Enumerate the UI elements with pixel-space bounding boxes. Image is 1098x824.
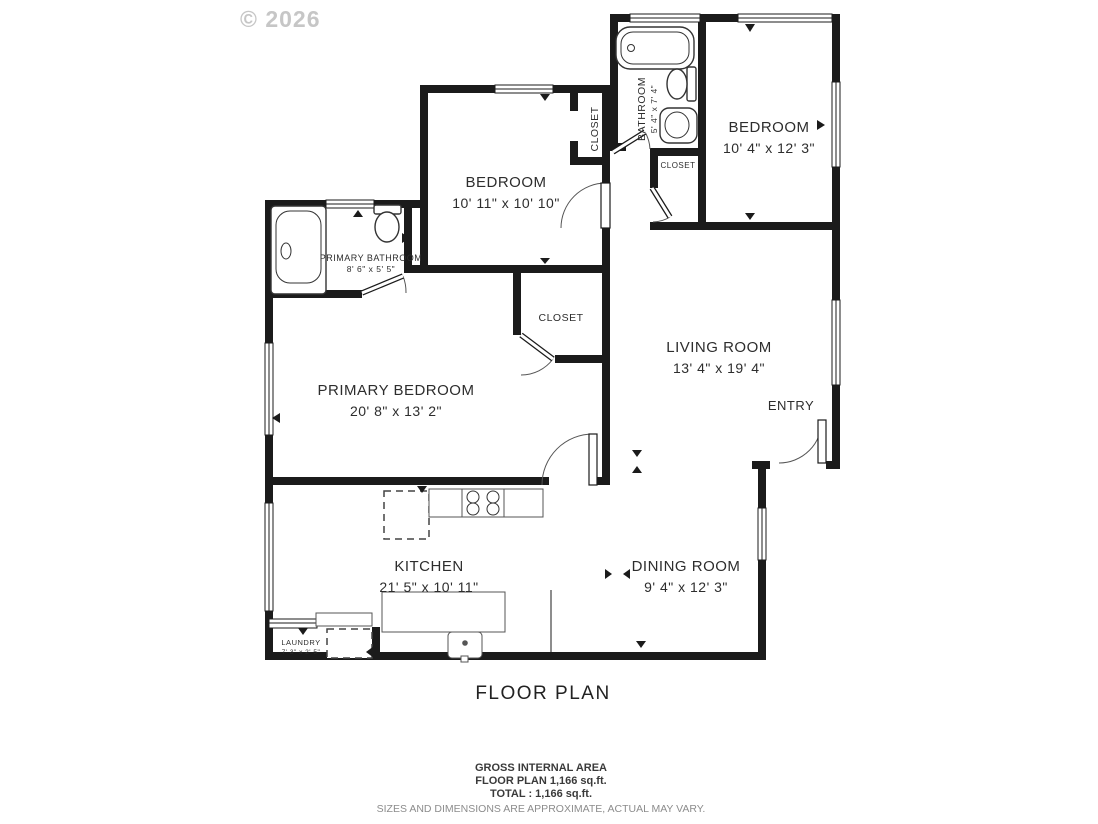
shelf — [316, 613, 372, 626]
room-label-kitchen: KITCHEN 21' 5" x 10' 11" — [379, 558, 478, 595]
window — [265, 503, 273, 611]
door-bedroom-middle — [561, 183, 610, 228]
floor-plan-page: BATHROOM 5' 4" x 7' 4" BEDROOM 10' 4" x … — [0, 0, 1098, 824]
footer-disclaimer: SIZES AND DIMENSIONS ARE APPROXIMATE, AC… — [377, 803, 706, 815]
bathtub-icon — [271, 206, 326, 294]
room-label-bedroom-middle: BEDROOM 10' 11" x 10' 10" — [452, 174, 560, 211]
room-dims: 10' 11" x 10' 10" — [452, 195, 560, 211]
floor-plan-drawing: BATHROOM 5' 4" x 7' 4" BEDROOM 10' 4" x … — [0, 0, 1098, 824]
room-dims: 5' 4" x 7' 4" — [649, 85, 659, 133]
room-name: PRIMARY BEDROOM — [318, 382, 475, 399]
window — [265, 343, 273, 435]
toilet-icon — [374, 205, 401, 242]
window — [832, 82, 840, 167]
room-label-primary-bedroom: PRIMARY BEDROOM 20' 8" x 13' 2" — [318, 382, 475, 419]
room-dims: 9' 4" x 12' 3" — [644, 579, 728, 595]
door-entry — [779, 420, 826, 463]
room-dims: 21' 5" x 10' 11" — [379, 579, 478, 595]
room-label-living-room: LIVING ROOM 13' 4" x 19' 4" — [666, 339, 772, 376]
room-name: LIVING ROOM — [666, 339, 772, 356]
closet-label: CLOSET — [538, 312, 583, 324]
washer-icon — [327, 629, 372, 658]
door-primary-bedroom — [542, 434, 597, 485]
toilet-icon — [667, 67, 696, 101]
plan-title: FLOOR PLAN — [475, 683, 610, 704]
stove-icon — [462, 489, 504, 517]
room-dims: 10' 4" x 12' 3" — [723, 140, 815, 156]
room-name: BATHROOM — [636, 77, 648, 141]
room-name: PRIMARY BATHROOM — [320, 253, 423, 263]
window — [832, 300, 840, 385]
kitchen-fixtures — [382, 489, 551, 662]
counter — [382, 592, 505, 632]
room-labels: BATHROOM 5' 4" x 7' 4" BEDROOM 10' 4" x … — [281, 77, 815, 656]
room-dims: 8' 6" x 5' 5" — [347, 264, 395, 274]
closet-label-vertical: CLOSET — [589, 106, 601, 151]
room-name: DINING ROOM — [632, 558, 741, 575]
footer-total-area: TOTAL : 1,166 sq.ft. — [490, 788, 592, 800]
window — [758, 508, 766, 560]
door-primary-bathroom — [362, 276, 406, 293]
walls — [265, 14, 840, 660]
refrigerator-icon — [384, 491, 429, 539]
doors — [362, 132, 826, 485]
room-dims: 20' 8" x 13' 2" — [350, 403, 442, 419]
window — [269, 619, 317, 628]
door-closet-primary — [521, 335, 553, 375]
window — [630, 14, 700, 22]
copyright-watermark: © 2026 — [240, 6, 321, 32]
room-label-dining-room: DINING ROOM 9' 4" x 12' 3" — [632, 558, 741, 595]
room-label-laundry: LAUNDRY 7' 3" x 2' 5" — [281, 638, 320, 656]
door-closet-hall — [652, 188, 670, 222]
footer: GROSS INTERNAL AREA FLOOR PLAN 1,166 sq.… — [377, 762, 706, 815]
bathtub-icon — [616, 27, 694, 69]
room-name: BEDROOM — [465, 174, 546, 191]
room-name: LAUNDRY — [281, 638, 320, 647]
window — [738, 14, 832, 22]
closet-label: CLOSET — [660, 161, 695, 170]
window — [326, 200, 374, 208]
entry-label: ENTRY — [768, 398, 814, 413]
room-label-bathroom: BATHROOM 5' 4" x 7' 4" — [636, 77, 659, 141]
room-dims: 7' 3" x 2' 5" — [282, 649, 321, 656]
room-name: BEDROOM — [728, 119, 809, 136]
dimension-ticks — [272, 24, 825, 648]
window — [495, 85, 553, 93]
footer-floor-plan-area: FLOOR PLAN 1,166 sq.ft. — [475, 775, 606, 787]
closet-label: CLOSET — [589, 106, 601, 151]
sink-icon — [660, 108, 697, 143]
kitchen-sink-icon — [448, 632, 482, 662]
room-label-bedroom-top-right: BEDROOM 10' 4" x 12' 3" — [723, 119, 815, 156]
footer-gross-area: GROSS INTERNAL AREA — [475, 762, 607, 774]
room-dims: 13' 4" x 19' 4" — [673, 360, 765, 376]
room-name: KITCHEN — [394, 558, 463, 575]
